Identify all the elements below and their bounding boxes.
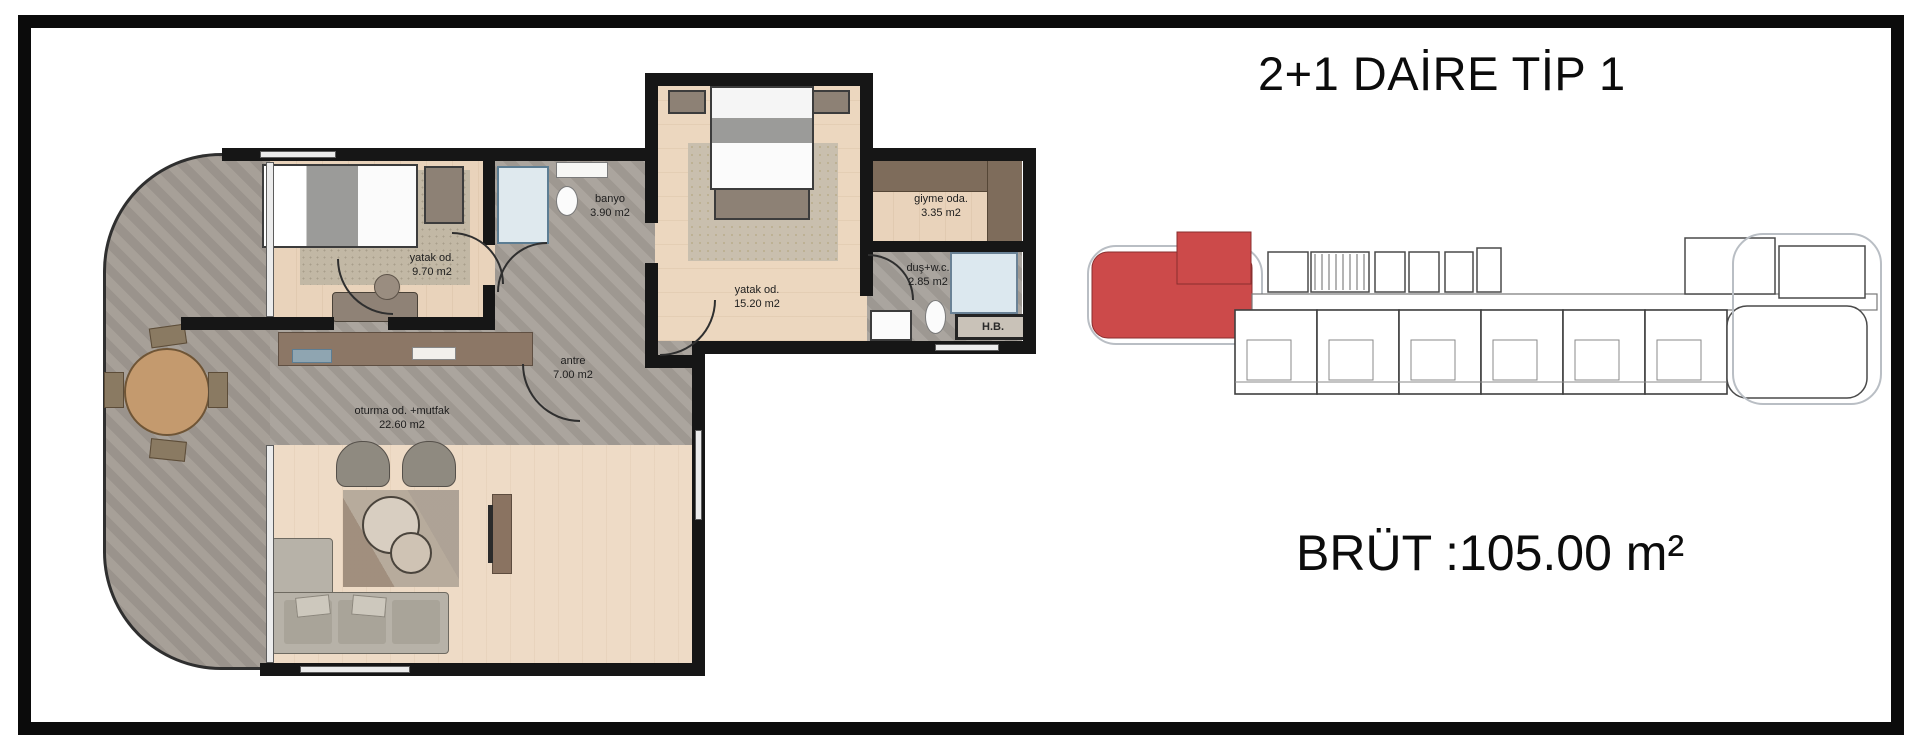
room-area: 22.60 m2 [312,418,492,432]
bathroom-sink [556,162,608,178]
kitchen-cooktop [412,347,456,360]
keyplan-units-row [1235,310,1727,394]
room-name: duş+w.c. [868,261,988,275]
room-area: 3.35 m2 [881,206,1001,220]
room-area: 3.90 m2 [550,206,670,220]
bedroom2-nightstand [668,90,706,114]
dining-chair [104,372,124,408]
sofa-pillow [295,594,331,617]
room-label-banyo: banyo 3.90 m2 [550,192,670,221]
window [300,666,410,673]
room-area: 15.20 m2 [697,297,817,311]
room-label-antre: antre 7.00 m2 [513,354,633,383]
room-label-dus-wc: duş+w.c. 2.85 m2 [868,261,988,290]
room-name: H.B. [955,320,1031,334]
room-name: banyo [550,192,670,206]
room-area: 9.70 m2 [372,265,492,279]
gross-area-text: BRÜT :105.00 m² [1296,524,1684,582]
dining-table [124,348,210,436]
window [695,430,702,520]
key-plan [1085,222,1885,414]
keyplan-service-row [1268,248,1501,292]
wall [692,368,705,676]
room-label-yatak-odasi-1: yatak od. 9.70 m2 [372,251,492,280]
bedroom2-nightstand [812,90,850,114]
room-name: yatak od. [697,283,817,297]
shower-cabin [497,166,549,244]
room-area: 2.85 m2 [868,275,988,289]
wall [645,263,658,360]
bedroom2-bed [710,86,814,190]
wc-toilet [925,300,946,334]
room-label-yatak-odasi-2: yatak od. 15.20 m2 [697,283,817,312]
dining-chair [208,372,228,408]
wall [645,73,873,86]
tv-screen [488,505,493,563]
tv-unit [492,494,512,574]
bedroom1-nightstand [424,166,464,224]
wall [181,317,334,330]
sofa-cushion [392,600,440,644]
bedroom2-bench [714,188,810,220]
window [935,344,999,351]
window [266,445,274,663]
living-armchair [402,441,456,487]
wall [483,160,495,245]
wall [388,317,495,330]
bedroom1-bed [262,164,418,248]
sofa-pillow [351,595,387,618]
room-area: 7.00 m2 [513,368,633,382]
room-name: antre [513,354,633,368]
window [260,151,336,158]
wall [860,241,1036,252]
floor-plan-sheet: yatak od. 9.70 m2 banyo 3.90 m2 giyme od… [0,0,1920,752]
room-name: giyme oda. [881,192,1001,206]
room-label-giyinme-odasi: giyme oda. 3.35 m2 [881,192,1001,221]
apartment-type-title: 2+1 DAİRE TİP 1 [1258,46,1626,101]
dining-chair [149,438,187,462]
room-label-hb: H.B. [955,320,1031,334]
room-label-oturma-mutfak: oturma od. +mutfak 22.60 m2 [312,404,492,433]
wall [483,285,495,320]
keyplan-highlight-unit-ext [1177,232,1251,284]
wall [860,163,873,241]
wc-vanity [870,310,912,341]
window [266,162,274,317]
living-armchair [336,441,390,487]
room-name: oturma od. +mutfak [312,404,492,418]
kitchen-sink [292,349,332,363]
wall [860,148,1036,161]
room-name: yatak od. [372,251,492,265]
sofa-chaise [271,538,333,596]
coffee-table-small [390,532,432,574]
